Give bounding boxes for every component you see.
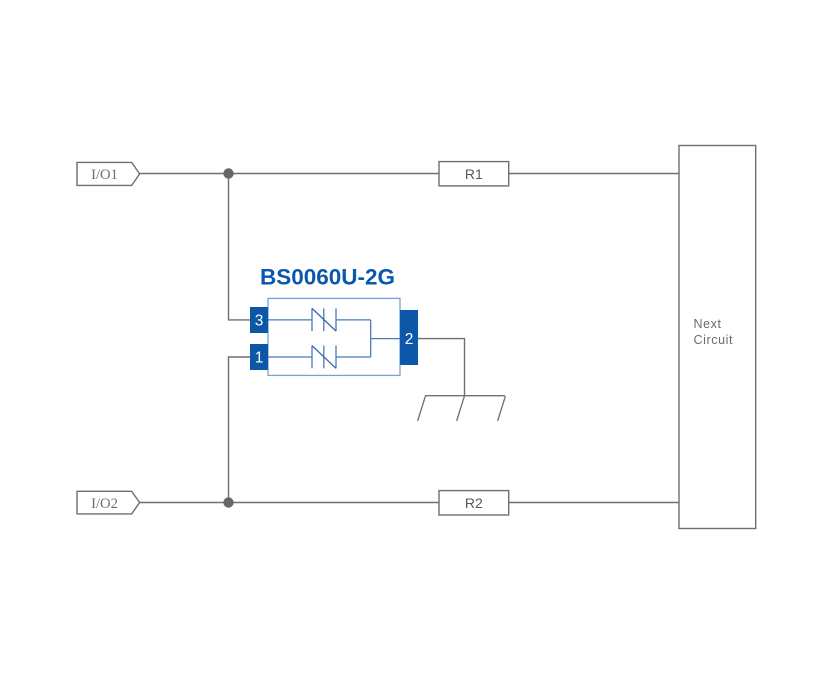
svg-text:R2: R2 bbox=[465, 495, 483, 511]
svg-text:I/O2: I/O2 bbox=[91, 496, 118, 512]
svg-text:1: 1 bbox=[255, 350, 264, 367]
svg-text:I/O1: I/O1 bbox=[91, 167, 118, 183]
svg-text:BS0060U-2G: BS0060U-2G bbox=[260, 265, 395, 290]
svg-text:Next: Next bbox=[694, 317, 722, 331]
svg-text:2: 2 bbox=[405, 331, 414, 348]
svg-text:Circuit: Circuit bbox=[694, 333, 734, 347]
svg-text:R1: R1 bbox=[465, 166, 483, 182]
svg-text:3: 3 bbox=[255, 313, 264, 330]
